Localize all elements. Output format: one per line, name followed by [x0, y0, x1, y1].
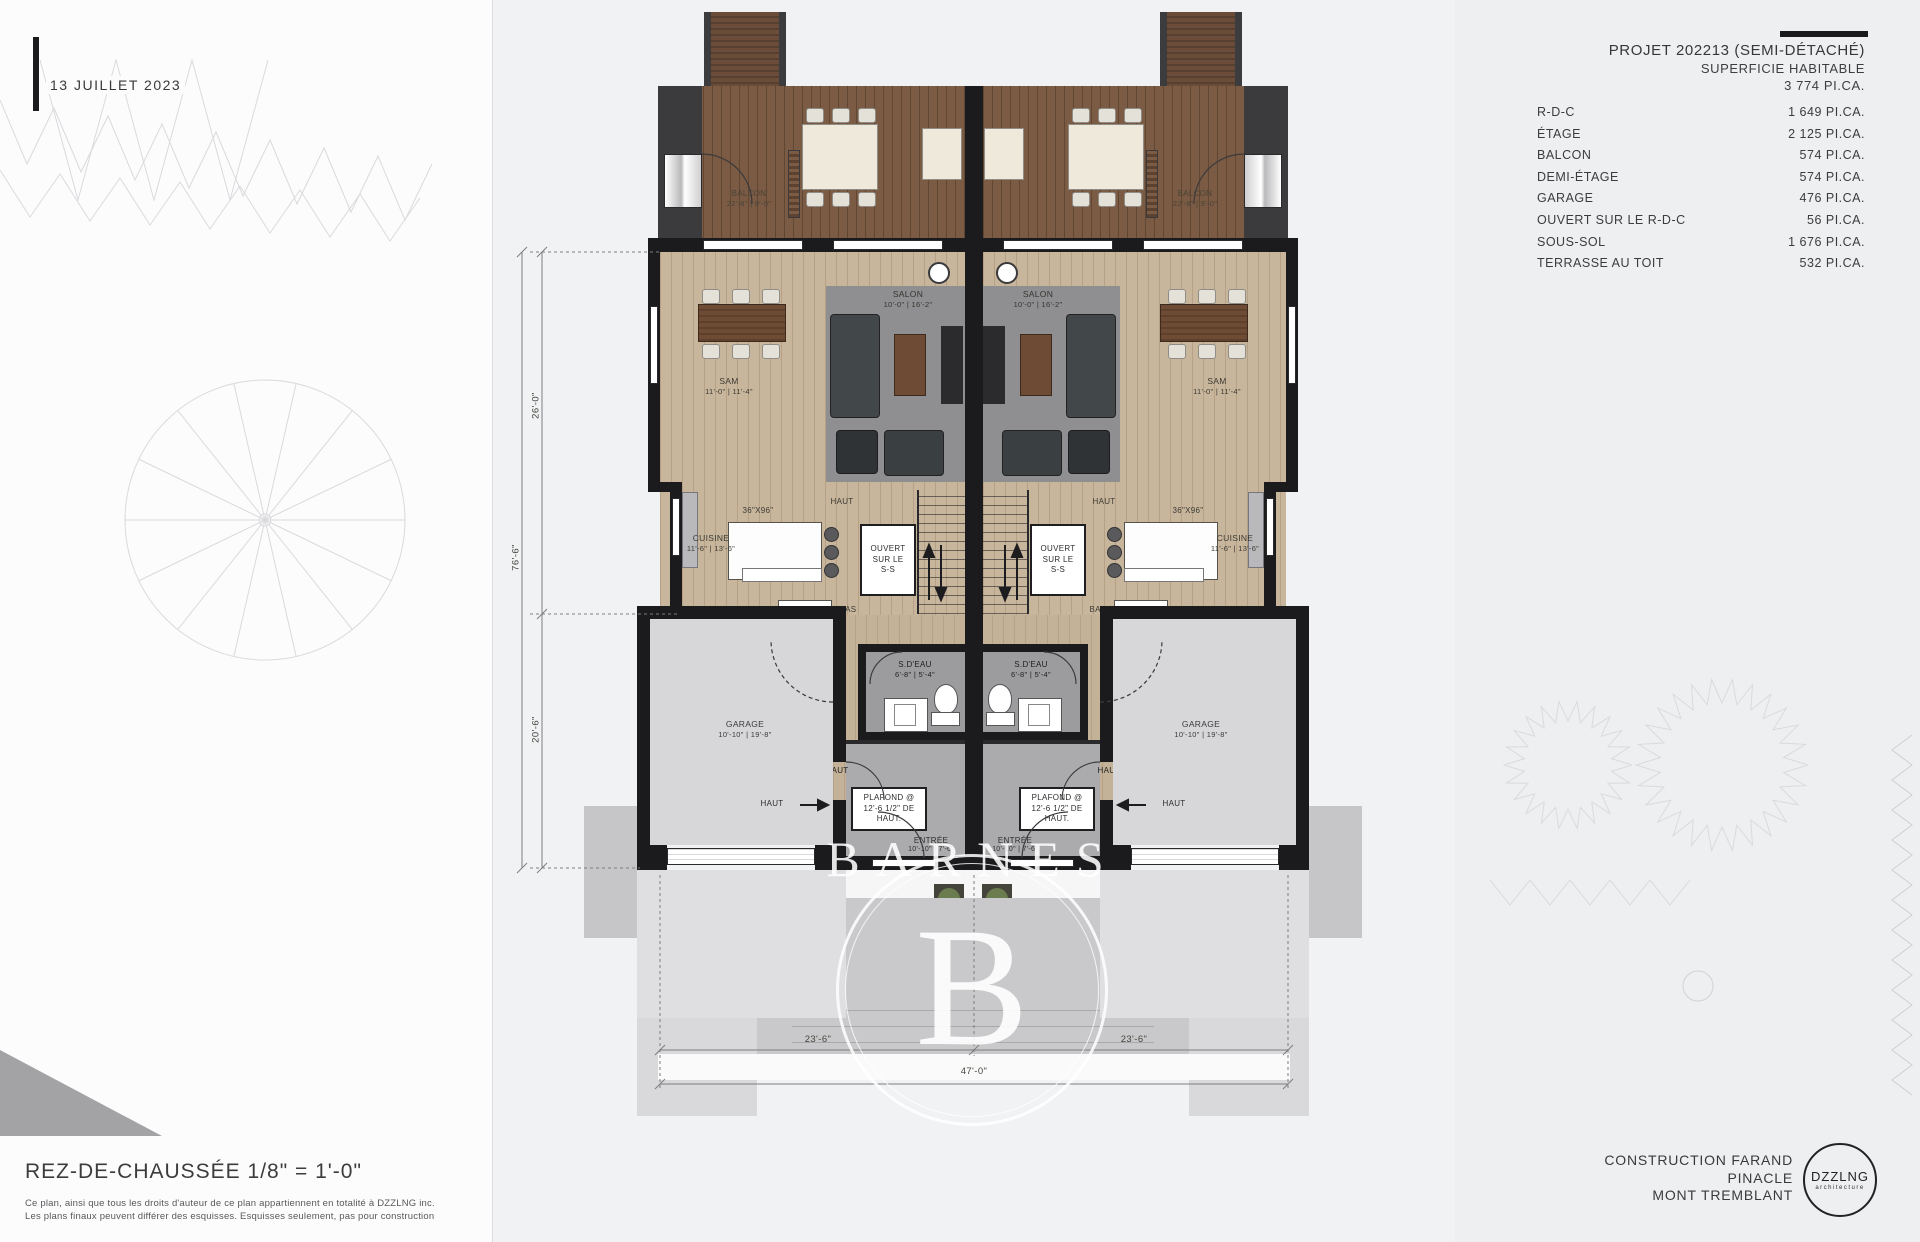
plafond-text: HAUT.	[1045, 814, 1070, 824]
media-unit	[983, 326, 1005, 404]
haut-text: HAUT	[1148, 799, 1200, 809]
toilet	[934, 684, 958, 714]
room-label-garage-left: GARAGE 10'-10" | 19'-8"	[708, 719, 782, 739]
garage-wall	[833, 606, 846, 762]
plafond-text: PLAFOND @	[864, 793, 915, 803]
balcony-small-table-right	[984, 128, 1024, 180]
bath-wall	[858, 732, 965, 740]
room-dim: 11'-6" | 13'-6"	[1198, 544, 1272, 553]
chair	[762, 344, 780, 359]
side-slab-left	[584, 806, 637, 938]
stool	[824, 563, 839, 578]
room-name: SALON	[1000, 289, 1076, 300]
sofa	[1066, 314, 1116, 418]
room-dim: 22'-8" | 9'-0"	[1152, 199, 1238, 208]
room-label-cuisine-left: CUISINE 11'-6" | 13'-6"	[674, 533, 748, 553]
driveway-right	[1100, 870, 1309, 1018]
wall-clock	[928, 262, 950, 284]
room-dim: 10'-10" | 7'-6"	[898, 846, 964, 855]
window	[650, 306, 658, 384]
ouvert-box-left: OUVERT SUR LE S-S	[860, 524, 916, 596]
haut-text: HAUT	[1084, 497, 1124, 507]
chair	[732, 344, 750, 359]
entry-door-left	[872, 859, 936, 867]
island-size-left: 36"X96"	[716, 506, 800, 516]
chair	[1168, 289, 1186, 304]
garage-door-right	[1131, 848, 1279, 865]
dim-text: 23'-6"	[1121, 1034, 1148, 1045]
garage-wall	[1296, 606, 1309, 870]
armchair	[836, 430, 878, 474]
haut-text: HAUT	[746, 799, 798, 809]
stool	[824, 545, 839, 560]
ouvert-text: SUR LE	[873, 555, 904, 565]
dim-text: 76'-6"	[511, 544, 522, 571]
entry-door-right	[1010, 859, 1074, 867]
dim-text: 26'-0"	[531, 392, 542, 419]
garage-wall	[1100, 606, 1309, 619]
chair	[1198, 344, 1216, 359]
chair	[762, 289, 780, 304]
chair	[806, 192, 824, 207]
chair	[1124, 192, 1142, 207]
room-name: BALCON	[706, 189, 792, 199]
room-dim: 22'-8" | 9'-0"	[706, 199, 792, 208]
room-dim: 10'-10" | 7'-6"	[982, 846, 1048, 855]
room-dim: 11'-0" | 11'-4"	[694, 387, 764, 396]
dim-left-lower: 20'-6"	[531, 700, 542, 760]
sofa	[1002, 430, 1062, 476]
window	[1288, 306, 1296, 384]
room-label-sam-left: SAM 11'-0" | 11'-4"	[694, 376, 764, 396]
ouvert-text: S-S	[881, 565, 895, 575]
chair	[832, 108, 850, 123]
chair	[858, 108, 876, 123]
vanity-sink	[894, 704, 916, 726]
room-name: CUISINE	[674, 533, 748, 544]
room-name: ENTRÉE	[982, 836, 1048, 846]
chair	[1168, 344, 1186, 359]
pergola-right	[1160, 12, 1242, 88]
room-label-sam-right: SAM 11'-0" | 11'-4"	[1182, 376, 1252, 396]
ouvert-text: S-S	[1051, 565, 1065, 575]
stool	[824, 527, 839, 542]
garage-front-pier	[815, 845, 846, 870]
room-name: CUISINE	[1198, 533, 1272, 544]
driveway-left	[637, 870, 846, 1018]
room-dim: 10'-10" | 19'-8"	[1164, 730, 1238, 739]
stool	[1107, 545, 1122, 560]
armchair	[1068, 430, 1110, 474]
garage-wall	[637, 606, 846, 619]
window	[833, 240, 943, 250]
balcony-door-left	[664, 154, 702, 208]
dim-bottom-left: 23'-6"	[788, 1034, 848, 1045]
room-label-cuisine-right: CUISINE 11'-6" | 13'-6"	[1198, 533, 1272, 553]
chair	[1072, 192, 1090, 207]
chair	[858, 192, 876, 207]
porch-step-line	[792, 1026, 1154, 1027]
party-wall	[965, 86, 983, 870]
room-label-sdeau-right: S.D'EAU 6'-8" | 5'-4"	[980, 660, 1082, 679]
plafond-text: 12'-6 1/2" DE	[1032, 804, 1083, 814]
island-dim: 36"X96"	[716, 506, 800, 516]
pergola-left	[704, 12, 786, 88]
chair	[702, 289, 720, 304]
appliance-left	[682, 492, 698, 568]
room-dim: 6'-8" | 5'-4"	[980, 670, 1082, 679]
room-label-balcon-left: BALCON 22'-8" | 9'-0"	[706, 189, 792, 208]
room-label-balcon-right: BALCON 22'-8" | 9'-0"	[1152, 189, 1238, 208]
room-label-salon-left: SALON 10'-0" | 16'-2"	[870, 289, 946, 309]
plafond-text: PLAFOND @	[1032, 793, 1083, 803]
dining-table-right	[1160, 304, 1248, 342]
ouvert-box-right: OUVERT SUR LE S-S	[1030, 524, 1086, 596]
dining-table-left	[698, 304, 786, 342]
toilet-tank	[931, 712, 960, 726]
plafond-box-left: PLAFOND @ 12'-6 1/2" DE HAUT.	[851, 787, 927, 831]
room-name: GARAGE	[708, 719, 782, 730]
stairs-left	[917, 490, 965, 614]
toilet	[988, 684, 1012, 714]
room-label-sdeau-left: S.D'EAU 6'-8" | 5'-4"	[864, 660, 966, 679]
dim-bottom-total: 47'-0"	[944, 1066, 1004, 1077]
bath-wall	[858, 644, 965, 652]
haut-text: HAUT	[822, 497, 862, 507]
room-name: SAM	[694, 376, 764, 387]
toilet-tank	[986, 712, 1015, 726]
balcony-door-right	[1244, 154, 1282, 208]
room-name: ENTRÉE	[898, 836, 964, 846]
window	[672, 498, 680, 556]
chair	[1072, 108, 1090, 123]
garage-door-left	[667, 848, 815, 865]
room-label-entree-right: ENTRÉE 10'-10" | 7'-6"	[982, 836, 1048, 855]
room-label-garage-right: GARAGE 10'-10" | 19'-8"	[1164, 719, 1238, 739]
dim-text: 47'-0"	[961, 1066, 988, 1077]
coffee-table	[1020, 334, 1052, 396]
chair	[1098, 192, 1116, 207]
ouvert-text: SUR LE	[1043, 555, 1074, 565]
stairs-right	[981, 490, 1029, 614]
room-dim: 11'-0" | 11'-4"	[1182, 387, 1252, 396]
room-dim: 6'-8" | 5'-4"	[864, 670, 966, 679]
room-dim: 10'-10" | 19'-8"	[708, 730, 782, 739]
chair	[806, 108, 824, 123]
garage-label-haut-left: HAUT	[746, 799, 798, 809]
garage-front-pier	[1279, 845, 1309, 870]
room-label-entree-left: ENTRÉE 10'-10" | 7'-6"	[898, 836, 964, 855]
balcony-small-table-left	[922, 128, 962, 180]
sofa	[830, 314, 880, 418]
bath-wall	[1080, 644, 1088, 740]
bath-wall	[981, 732, 1088, 740]
chair	[1098, 108, 1116, 123]
garage-wall	[637, 606, 650, 870]
plafond-box-right: PLAFOND @ 12'-6 1/2" DE HAUT.	[1019, 787, 1095, 831]
bath-wall	[981, 644, 1088, 652]
ouvert-text: OUVERT	[871, 544, 906, 554]
room-name: BALCON	[1152, 189, 1238, 199]
side-slab-right	[1309, 806, 1362, 938]
chair	[1228, 289, 1246, 304]
room-name: SALON	[870, 289, 946, 300]
stool	[1107, 527, 1122, 542]
sofa	[884, 430, 944, 476]
dim-left-full: 76'-6"	[511, 528, 522, 588]
island-dim: 36"X96"	[1146, 506, 1230, 516]
window	[1003, 240, 1113, 250]
island-size-right: 36"X96"	[1146, 506, 1230, 516]
kitchen-counter-right	[1124, 568, 1204, 582]
chair	[832, 192, 850, 207]
stair-label-haut-left: HAUT	[822, 497, 862, 507]
plafond-text: HAUT.	[877, 814, 902, 824]
bath-wall	[858, 644, 866, 740]
plafond-text: 12'-6 1/2" DE	[864, 804, 915, 814]
balcony-table-left	[802, 124, 878, 190]
garage-front-pier	[637, 845, 667, 870]
wall-clock	[996, 262, 1018, 284]
floor-plan: BALCON 22'-8" | 9'-0" BALCON 22'-8" | 9'…	[0, 0, 1920, 1242]
dim-bottom-right: 23'-6"	[1104, 1034, 1164, 1045]
garage-front-pier	[1100, 845, 1131, 870]
room-name: GARAGE	[1164, 719, 1238, 730]
window	[1266, 498, 1274, 556]
chair	[1124, 108, 1142, 123]
chair	[732, 289, 750, 304]
stair-label-haut-right: HAUT	[1084, 497, 1124, 507]
chair	[702, 344, 720, 359]
appliance-right	[1248, 492, 1264, 568]
window	[703, 240, 803, 250]
room-dim: 10'-0" | 16'-2"	[1000, 300, 1076, 309]
stool	[1107, 563, 1122, 578]
ouvert-text: OUVERT	[1041, 544, 1076, 554]
coffee-table	[894, 334, 926, 396]
room-dim: 11'-6" | 13'-6"	[674, 544, 748, 553]
room-dim: 10'-0" | 16'-2"	[870, 300, 946, 309]
dim-left-upper: 26'-0"	[531, 376, 542, 436]
room-name: S.D'EAU	[864, 660, 966, 670]
media-unit	[941, 326, 963, 404]
room-name: SAM	[1182, 376, 1252, 387]
garage-wall	[1100, 606, 1113, 762]
room-label-salon-right: SALON 10'-0" | 16'-2"	[1000, 289, 1076, 309]
balcony-table-right	[1068, 124, 1144, 190]
window	[1143, 240, 1243, 250]
chair	[1228, 344, 1246, 359]
garage-label-haut-right: HAUT	[1148, 799, 1200, 809]
chair	[1198, 289, 1216, 304]
dim-text: 20'-6"	[531, 716, 542, 743]
vanity-sink	[1028, 704, 1050, 726]
kitchen-counter-left	[742, 568, 822, 582]
room-name: S.D'EAU	[980, 660, 1082, 670]
floor-plan-sheet: { "date": "13 JUILLET 2023", "project": …	[0, 0, 1920, 1242]
dim-text: 23'-6"	[805, 1034, 832, 1045]
